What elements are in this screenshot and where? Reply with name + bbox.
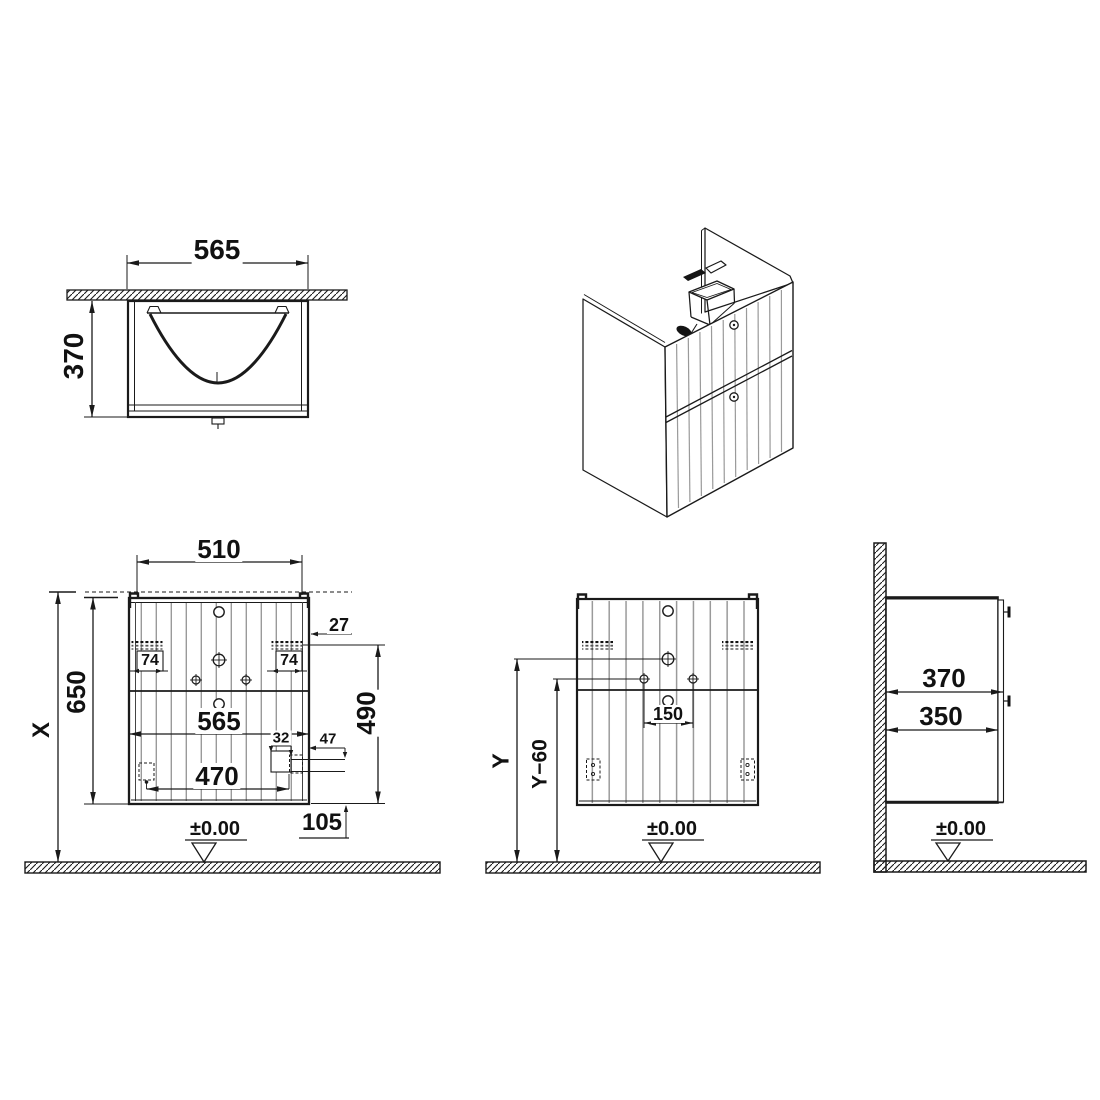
rear-datum-label: ±0.00 bbox=[645, 819, 699, 839]
drawing-canvas bbox=[0, 0, 1100, 1100]
dim-front-bottom-offset: 105 bbox=[300, 811, 344, 835]
isometric-view bbox=[583, 228, 793, 517]
dim-front-total-height: X bbox=[30, 720, 54, 740]
dim-front-feet-width: 470 bbox=[193, 763, 240, 789]
dim-front-bracket-right: 74 bbox=[278, 653, 300, 669]
side-datum-label: ±0.00 bbox=[934, 819, 988, 839]
dim-plan-depth: 370 bbox=[60, 331, 88, 382]
dim-side-depth-total: 370 bbox=[920, 665, 967, 691]
dim-rear-tap-height: Y−60 bbox=[530, 737, 551, 791]
dim-front-runner-offset: 47 bbox=[318, 732, 339, 747]
dim-plan-width: 565 bbox=[192, 236, 243, 264]
side-knobs bbox=[1004, 607, 1011, 707]
dim-front-width: 565 bbox=[195, 708, 242, 734]
dim-front-edge-offset: 27 bbox=[327, 616, 351, 634]
dim-front-bracket-height: 490 bbox=[353, 689, 379, 736]
dim-front-runner-width: 32 bbox=[271, 731, 292, 746]
plan-view bbox=[67, 255, 347, 429]
dim-side-depth-carcass: 350 bbox=[917, 703, 964, 729]
dim-rear-hole-spacing: 150 bbox=[651, 705, 685, 723]
technical-drawing-page: 565 370 510 X 650 74 74 27 565 490 32 47… bbox=[0, 0, 1100, 1100]
dim-rear-mount-height: Y bbox=[490, 751, 513, 770]
dim-front-top-width: 510 bbox=[195, 536, 242, 562]
dim-front-bracket-left: 74 bbox=[139, 653, 161, 669]
dim-front-height: 650 bbox=[63, 668, 89, 715]
front-datum-label: ±0.00 bbox=[188, 819, 242, 839]
